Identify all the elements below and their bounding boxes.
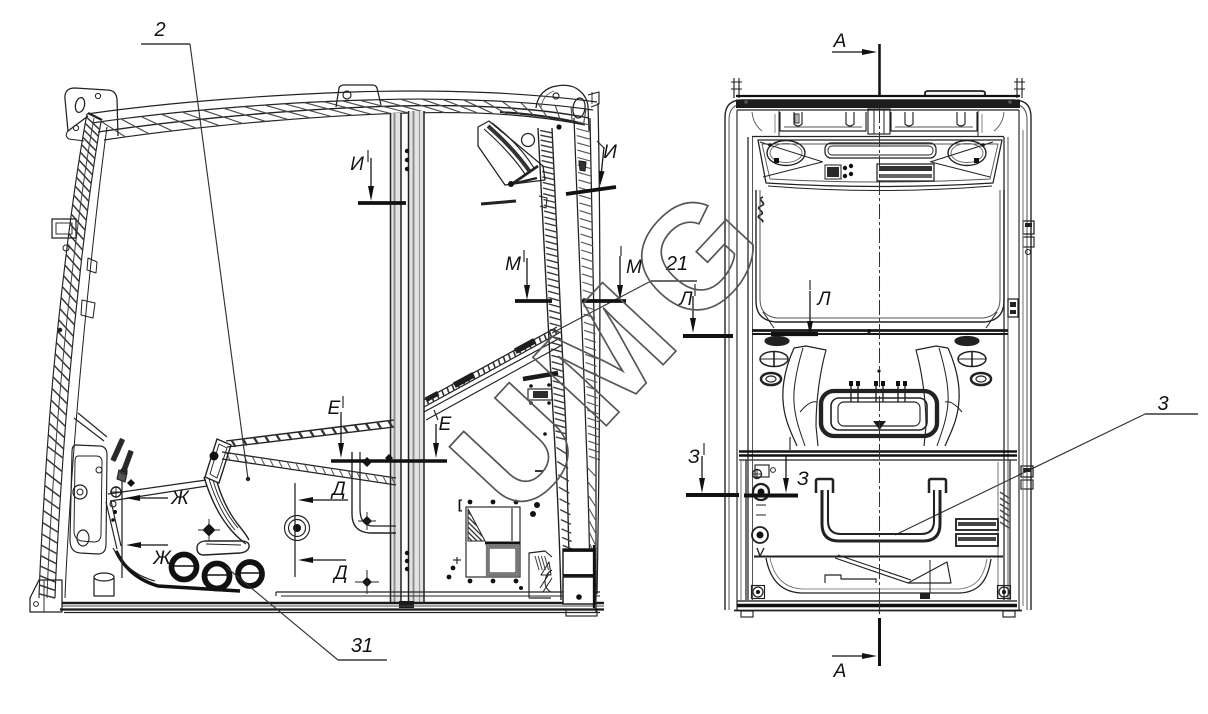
- svg-text:31: 31: [351, 635, 373, 657]
- svg-text:И: И: [350, 154, 364, 175]
- svg-text:Ж: Ж: [170, 488, 190, 509]
- svg-text:Д: Д: [330, 479, 345, 500]
- svg-text:Д: Д: [332, 563, 347, 584]
- svg-text:Ж: Ж: [152, 548, 172, 569]
- svg-text:Е: Е: [328, 398, 341, 419]
- svg-text:[: [: [458, 497, 463, 512]
- svg-text:И: И: [603, 142, 617, 163]
- svg-text:2: 2: [153, 19, 165, 41]
- svg-text:А: А: [833, 31, 847, 52]
- svg-text:Л: Л: [815, 289, 831, 310]
- svg-text:UMG: UMG: [420, 147, 804, 542]
- svg-text:3: 3: [1157, 393, 1168, 415]
- svg-text:А: А: [833, 661, 847, 682]
- svg-text:М: М: [505, 254, 521, 275]
- svg-text:З: З: [797, 469, 809, 490]
- svg-text:З: З: [688, 447, 700, 468]
